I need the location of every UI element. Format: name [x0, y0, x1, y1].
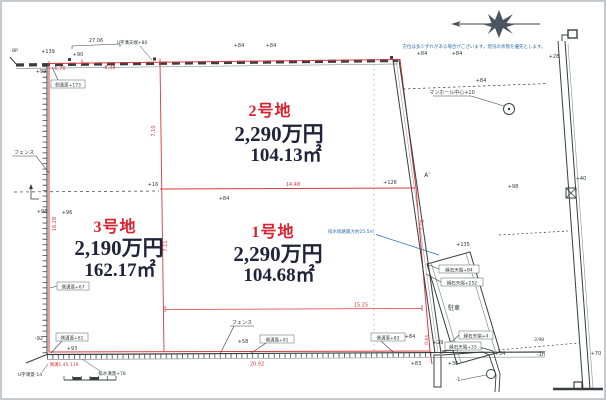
elev-mark: +84 — [452, 51, 463, 57]
elev-mark: +139 — [41, 49, 55, 55]
parcel-1-name: 1号地 — [251, 222, 294, 241]
dim-mid: 14.48 — [286, 182, 300, 188]
elev-mark: +98 — [37, 209, 48, 215]
label-gutter-91: 側溝蓋+91 — [266, 336, 289, 343]
elev-mark: +84 — [266, 43, 277, 49]
elev-mark: -1n — [537, 352, 545, 358]
elev-mark: +84 — [405, 334, 416, 340]
elev-mark: +34 — [495, 351, 506, 357]
manhole-icon — [487, 370, 496, 379]
manhole-label: マンホール中心+10 — [429, 89, 475, 96]
dim-top-b: 8.38 — [104, 65, 115, 71]
compass-star — [482, 10, 516, 38]
right-channel — [393, 60, 441, 353]
parcel-2-name: 2号地 — [248, 101, 291, 120]
elev-mark: +84 — [234, 43, 245, 49]
parcel-3-area: 162.17㎡ — [84, 258, 155, 281]
parcel-1-area: 104.68㎡ — [243, 263, 314, 286]
boundary-stone-icon — [390, 56, 393, 59]
dim-div-upper: 7.10 — [151, 125, 157, 136]
elev-mark: +58 — [238, 339, 249, 345]
section-a-prime: A' — [424, 172, 430, 179]
parking-label: 駐車 — [448, 304, 460, 312]
compass-area: 方位は多少ずれがある場合がございます。現況の状態を優先とします。 — [402, 10, 545, 50]
elev-mark: +40 — [576, 176, 587, 182]
elev-mark: +96 — [62, 210, 73, 216]
elev-mark: +93 — [67, 346, 78, 352]
dim-top-bracket: 27.06 — [89, 38, 103, 44]
dim-right-side: 7.05 — [418, 219, 425, 231]
drain-cover-label: 排水溝蓋+78 — [98, 370, 126, 377]
fence-label-left: フェンス — [14, 150, 34, 156]
parcel-1-label-block: 1号地 2,290万円 104.68㎡ — [233, 222, 322, 286]
dim-gap: 3.98 — [534, 337, 544, 343]
site-boundary-red — [49, 60, 432, 365]
right-strip — [498, 30, 603, 389]
label-curb-4: 縁石天端+4 — [464, 332, 489, 339]
parcel-1-price: 2,290万円 — [233, 242, 322, 266]
compass-icon — [451, 10, 540, 38]
elev-mark: +36 — [448, 361, 459, 367]
elev-mark: +70 — [591, 351, 602, 357]
marker-square-top — [568, 30, 577, 38]
u-gutter-top-label: U字溝天端+80 — [117, 39, 148, 46]
parcel-3-price: 2,190万円 — [74, 236, 163, 260]
plain-labels: BP U字溝天端+80 U字溝蓋-14 排水溝蓋+78 側溝1.45 119 A… — [12, 39, 430, 378]
dim-ditch: 0.65 — [424, 335, 431, 346]
compass-disclaimer: 方位は多少ずれがある場合がございます。現況の状態を優先とします。 — [402, 43, 545, 50]
boundary-stone-icon — [68, 58, 71, 61]
dim-lower: 15.25 — [354, 303, 368, 309]
elev-mark: +29 — [433, 340, 444, 346]
elev-mark: -1 — [456, 377, 461, 383]
top-road-boundary — [10, 56, 398, 69]
parcel-dividers — [14, 62, 422, 352]
elev-mark: +135 — [456, 242, 470, 248]
parcel-3-label-block: 3号地 2,190万円 162.17㎡ — [74, 217, 163, 281]
drain-note-blue: 排水経路最大約25.5m — [328, 228, 374, 235]
parcel-2-area: 104.13㎡ — [250, 143, 321, 166]
label-gutter-67: 側溝蓋+67 — [62, 283, 85, 290]
elev-mark: +99 — [36, 69, 47, 75]
neighbor-area-top: マンホール中心+10 — [403, 84, 548, 115]
label-curb-252: 縁石天端+252 — [447, 279, 477, 286]
dimension-texts: 27.06 6.76 8.38 14.48 15.25 20.92 16.28 … — [52, 38, 544, 368]
parcel-2-label-block: 2号地 2,290万円 104.13㎡ — [234, 101, 323, 166]
dim-bottom: 20.92 — [250, 362, 264, 368]
elev-mark: +84 — [476, 78, 487, 84]
boundary-stone-icon — [153, 58, 156, 61]
dim-left-side: 16.28 — [52, 217, 58, 231]
elev-mark: +16 — [148, 182, 159, 188]
u-gutter-bottom-label: U字溝蓋-14 — [18, 371, 42, 378]
elev-mark: +84 — [219, 196, 230, 202]
fence-label-bottom: フェンス — [232, 320, 252, 326]
bp-label: BP — [12, 48, 18, 54]
elev-mark: -92 — [35, 336, 43, 342]
parcel-2-price: 2,290万円 — [234, 122, 323, 146]
label-gutter-83: 側溝蓋+83 — [377, 334, 400, 341]
blue-drain-annotation: 排水経路最大約25.5m — [328, 228, 439, 255]
survey-drawing-page: 2号地 2,290万円 104.13㎡ 3号地 2,190万円 162.17㎡ … — [0, 0, 606, 400]
gutter-note-red: 側溝1.45 119 — [49, 361, 78, 368]
label-curb-33: 縁石天端+33 — [449, 343, 477, 350]
elev-mark: +90 — [73, 52, 84, 58]
dim-div-lower: 7.11 — [163, 240, 169, 251]
hatched-box-icon — [566, 188, 576, 198]
elev-mark: +98 — [508, 184, 519, 190]
elev-mark: +84 — [417, 51, 428, 57]
label-curb-84: 縁石天端+84 — [445, 266, 473, 273]
elev-mark: +28 — [549, 54, 560, 60]
elev-mark: +83 — [411, 361, 422, 367]
elev-mark: +126 — [383, 180, 397, 186]
parcel-3-name: 3号地 — [93, 217, 136, 236]
land-plot-diagram: 2号地 2,290万円 104.13㎡ 3号地 2,190万円 162.17㎡ … — [2, 2, 604, 398]
elevation-marks: +139 +99 +90 +84 +84 +84 +84 +84 +84 +84… — [35, 43, 601, 383]
label-gutter-61: 側溝蓋+61 — [61, 334, 84, 341]
manhole-center-dot — [508, 108, 510, 110]
dim-top-a: 6.76 — [54, 66, 65, 72]
benchmark-icon — [29, 184, 39, 199]
label-gutter-173: 側溝蓋+173 — [55, 81, 81, 88]
